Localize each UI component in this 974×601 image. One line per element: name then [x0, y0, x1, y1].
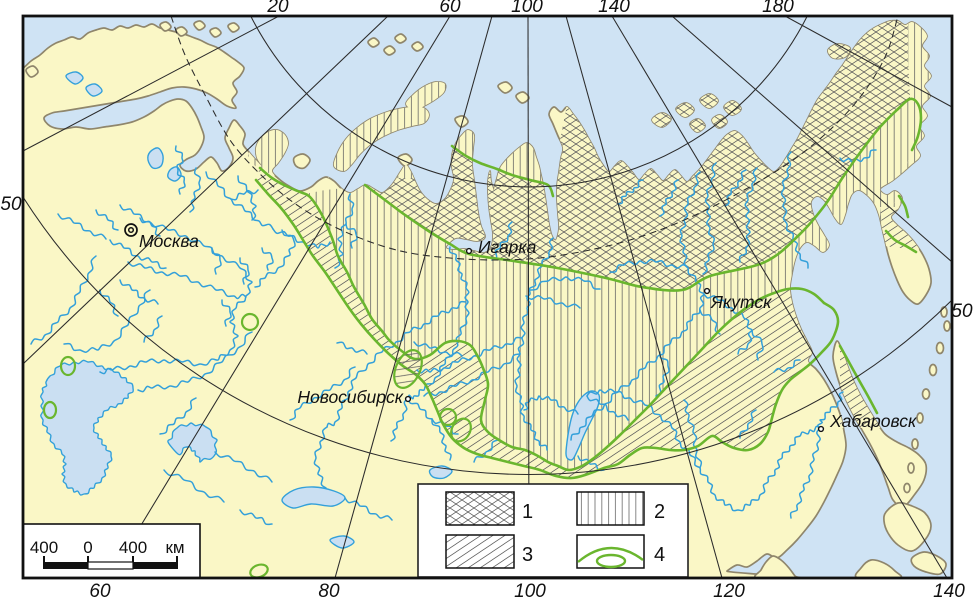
svg-text:1: 1 — [522, 501, 533, 523]
svg-text:60: 60 — [439, 0, 461, 17]
svg-text:3: 3 — [522, 544, 533, 566]
svg-text:400: 400 — [119, 538, 147, 557]
svg-text:140: 140 — [933, 581, 965, 601]
svg-text:50: 50 — [0, 194, 22, 215]
svg-text:км: км — [165, 538, 184, 557]
svg-text:60: 60 — [89, 581, 111, 601]
svg-text:Якутск: Якутск — [710, 292, 772, 312]
svg-text:20: 20 — [266, 0, 289, 17]
svg-text:Новосибирск: Новосибирск — [297, 387, 403, 407]
svg-text:100: 100 — [514, 581, 546, 601]
svg-text:Игарка: Игарка — [478, 237, 537, 257]
svg-text:80: 80 — [318, 581, 340, 601]
svg-text:50: 50 — [951, 301, 973, 322]
svg-text:4: 4 — [654, 544, 665, 566]
svg-text:100: 100 — [511, 0, 543, 17]
svg-text:120: 120 — [713, 581, 745, 601]
svg-text:0: 0 — [83, 538, 92, 557]
svg-text:400: 400 — [30, 538, 58, 557]
svg-text:180: 180 — [762, 0, 794, 17]
svg-text:140: 140 — [598, 0, 630, 17]
svg-text:Хабаровск: Хабаровск — [829, 411, 917, 431]
svg-text:Москва: Москва — [139, 231, 199, 251]
svg-text:2: 2 — [654, 501, 665, 523]
